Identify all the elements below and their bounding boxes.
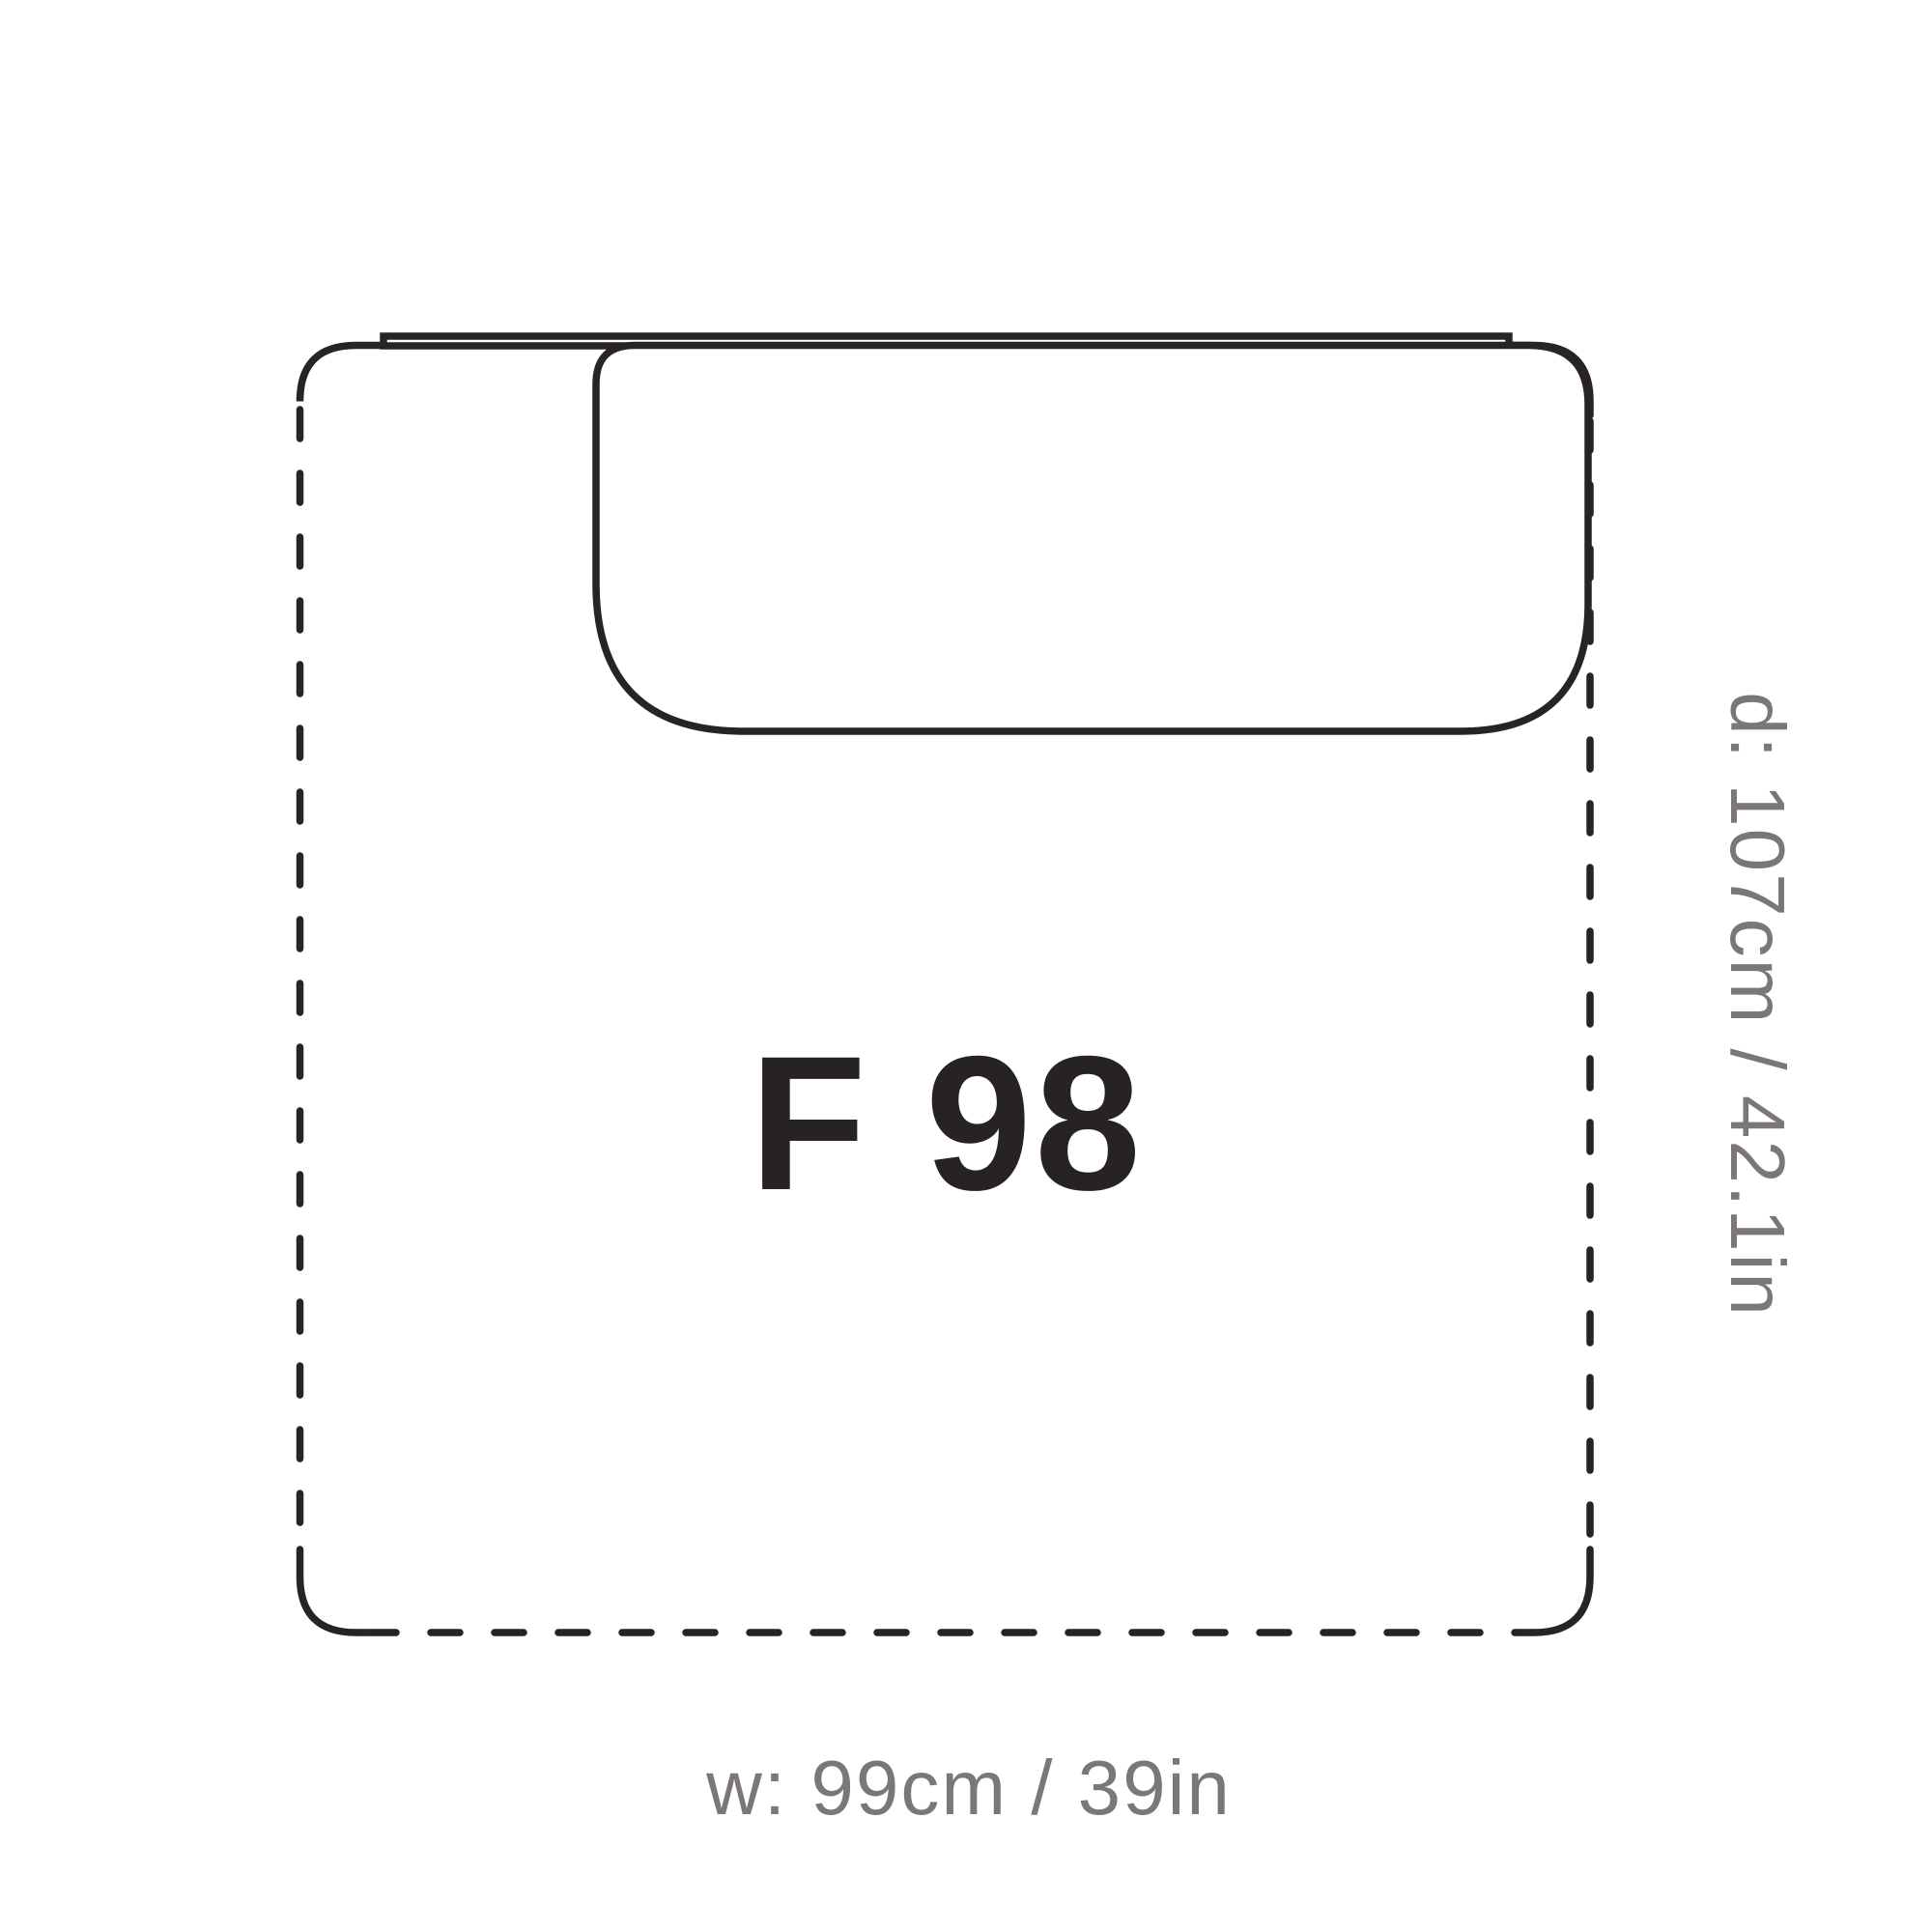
footprint-bottom-right-corner: [1524, 1549, 1590, 1633]
furniture-module-diagram: F 98 w: 99cm / 39in d: 107cm / 42.1in: [0, 0, 1932, 1932]
depth-dimension-label: d: 107cm / 42.1in: [1715, 692, 1801, 1318]
module-drawing: F 98 w: 99cm / 39in d: 107cm / 42.1in: [0, 0, 1932, 1932]
width-dimension-label: w: 99cm / 39in: [705, 1745, 1232, 1831]
backrest-cushion: [596, 346, 1588, 732]
module-name-label: F 98: [750, 1016, 1144, 1230]
footprint-bottom-left-corner: [300, 1549, 366, 1633]
